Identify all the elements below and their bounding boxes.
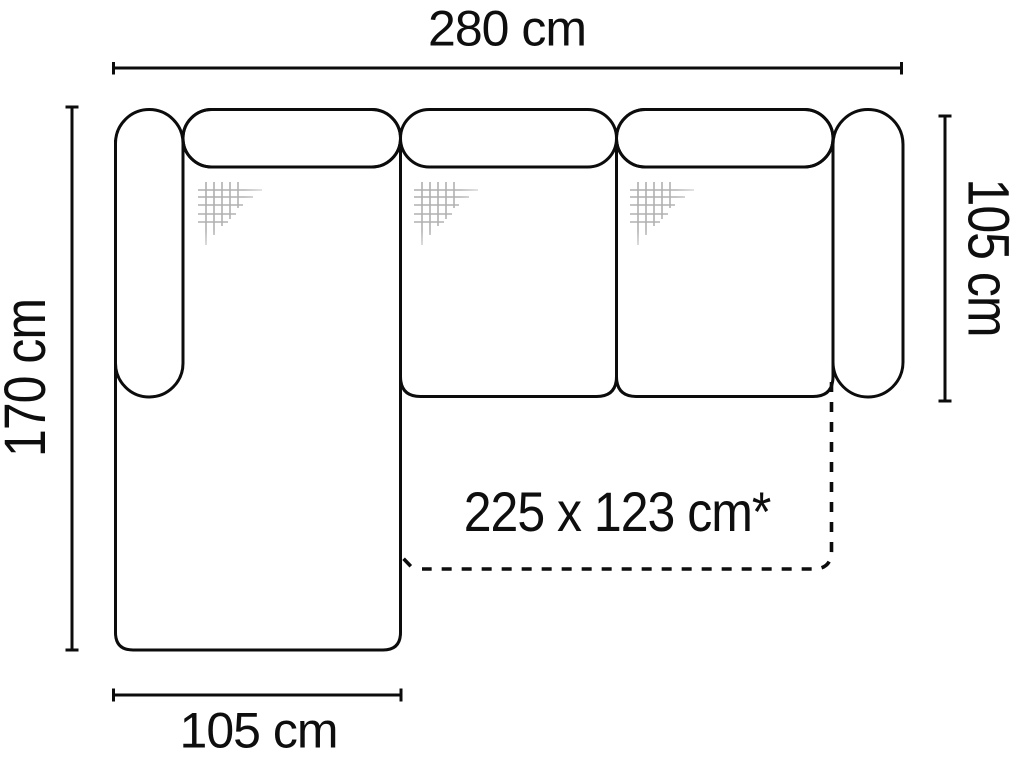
svg-text:280 cm: 280 cm: [428, 1, 586, 57]
svg-text:170 cm: 170 cm: [0, 299, 58, 457]
svg-text:225 x 123 cm*: 225 x 123 cm*: [464, 481, 771, 543]
svg-text:105 cm: 105 cm: [956, 179, 1020, 337]
svg-text:105 cm: 105 cm: [180, 703, 338, 757]
